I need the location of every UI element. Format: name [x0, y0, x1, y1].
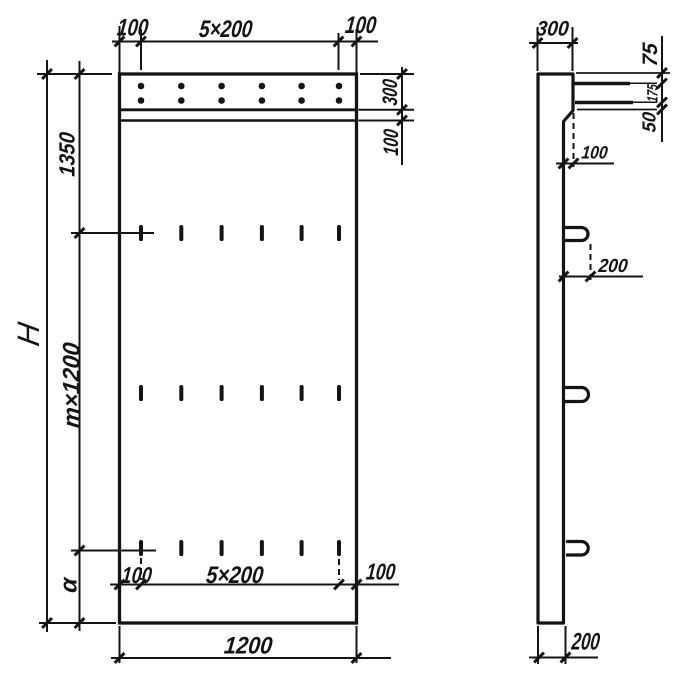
svg-text:100: 100	[344, 12, 378, 39]
svg-text:200: 200	[570, 629, 602, 656]
svg-text:100: 100	[581, 143, 609, 163]
svg-text:100: 100	[380, 128, 403, 157]
svg-text:175: 175	[645, 83, 662, 103]
svg-text:100: 100	[120, 562, 153, 588]
svg-text:75: 75	[639, 42, 662, 68]
svg-text:100: 100	[365, 559, 397, 585]
svg-text:50: 50	[640, 111, 661, 134]
svg-text:5×200: 5×200	[205, 562, 265, 589]
svg-text:100: 100	[116, 15, 150, 42]
svg-text:1350: 1350	[55, 130, 80, 177]
svg-text:m×1200: m×1200	[59, 341, 86, 429]
svg-text:200: 200	[597, 256, 629, 277]
svg-text:300: 300	[535, 18, 570, 41]
svg-text:300: 300	[379, 78, 402, 107]
svg-text:5×200: 5×200	[198, 16, 254, 43]
svg-text:1200: 1200	[223, 633, 274, 660]
